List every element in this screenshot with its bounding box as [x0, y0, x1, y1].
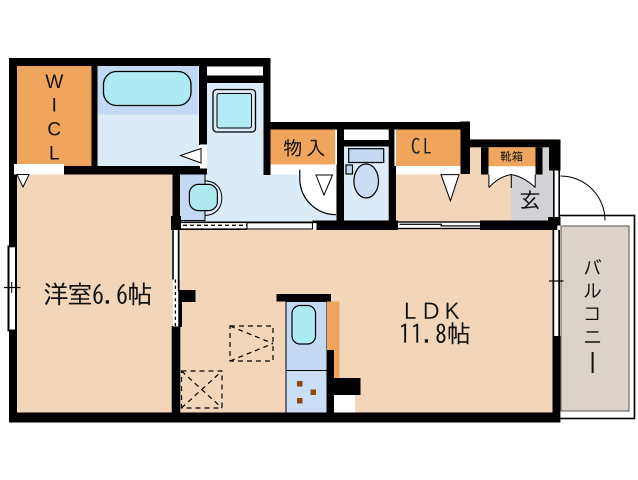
svg-text:W: W: [45, 72, 63, 93]
svg-text:L: L: [49, 144, 60, 165]
svg-text:C: C: [47, 120, 61, 141]
svg-text:I: I: [52, 96, 57, 117]
